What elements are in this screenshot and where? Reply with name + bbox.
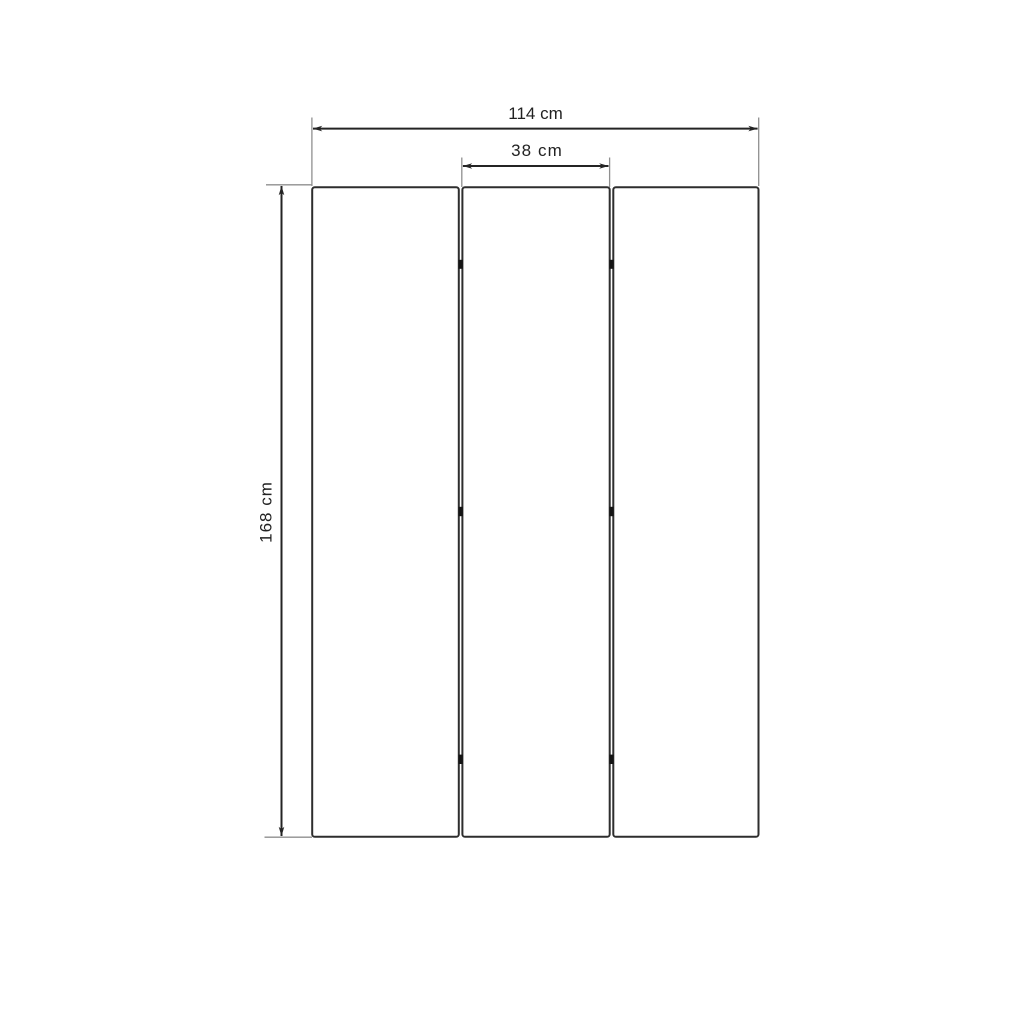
svg-text:114 cm: 114 cm xyxy=(508,104,563,123)
svg-text:38 cm: 38 cm xyxy=(511,141,563,160)
svg-text:168 cm: 168 cm xyxy=(257,481,276,543)
